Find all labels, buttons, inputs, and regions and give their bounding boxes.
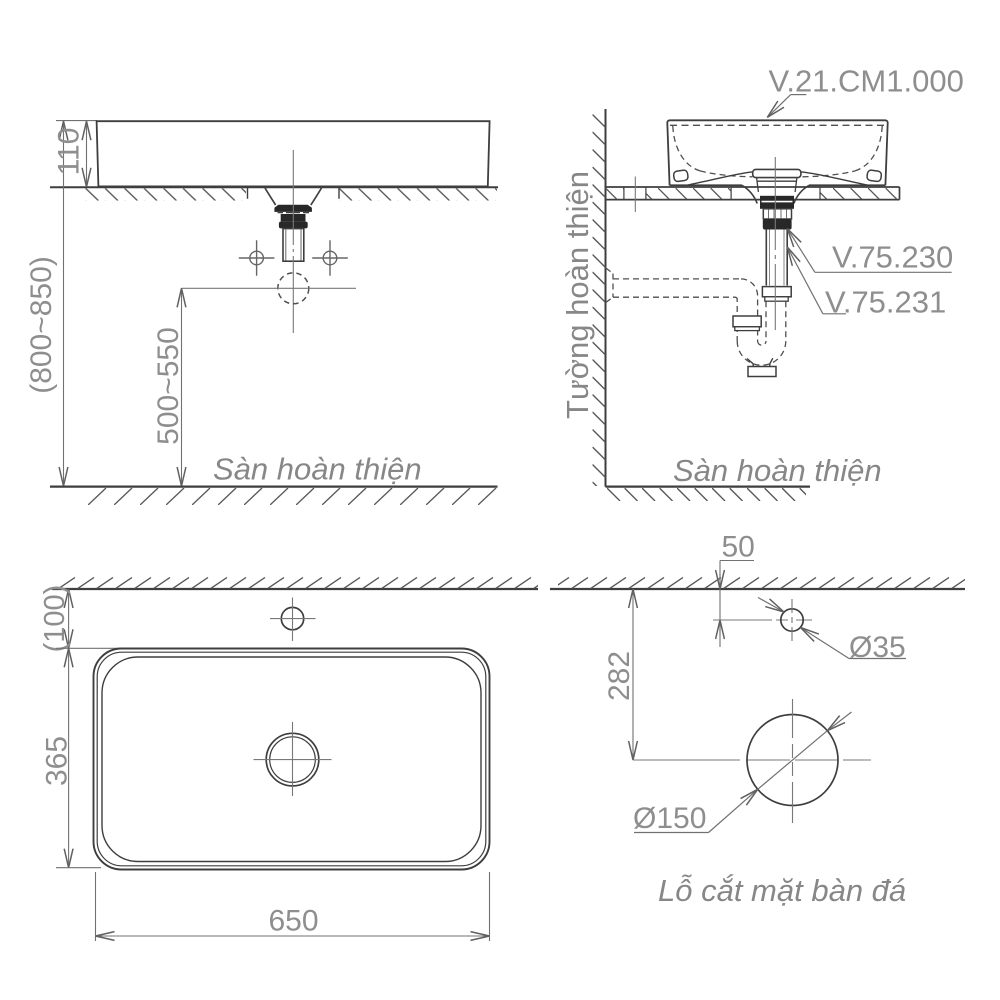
svg-text:50: 50 [722, 531, 755, 564]
svg-text:Sàn hoàn thiện: Sàn hoàn thiện [213, 452, 422, 487]
svg-text:Tường hoàn thiện: Tường hoàn thiện [560, 171, 595, 419]
svg-text:110: 110 [53, 128, 86, 176]
svg-text:V.75.230: V.75.230 [832, 240, 953, 275]
svg-text:365: 365 [41, 736, 74, 786]
svg-text:650: 650 [268, 905, 318, 938]
svg-text:Sàn hoàn thiện: Sàn hoàn thiện [673, 453, 882, 488]
svg-text:Ø150: Ø150 [633, 802, 706, 835]
svg-text:Ø35: Ø35 [849, 631, 906, 664]
svg-text:V.21.CM1.000: V.21.CM1.000 [769, 63, 964, 98]
svg-text:V.75.231: V.75.231 [825, 284, 946, 319]
svg-text:500~550: 500~550 [152, 327, 185, 445]
svg-text:Lỗ cắt mặt bàn đá: Lỗ cắt mặt bàn đá [658, 873, 906, 908]
svg-text:282: 282 [603, 651, 636, 701]
svg-text:(100): (100) [39, 585, 71, 653]
svg-text:(800~850): (800~850) [25, 256, 58, 394]
